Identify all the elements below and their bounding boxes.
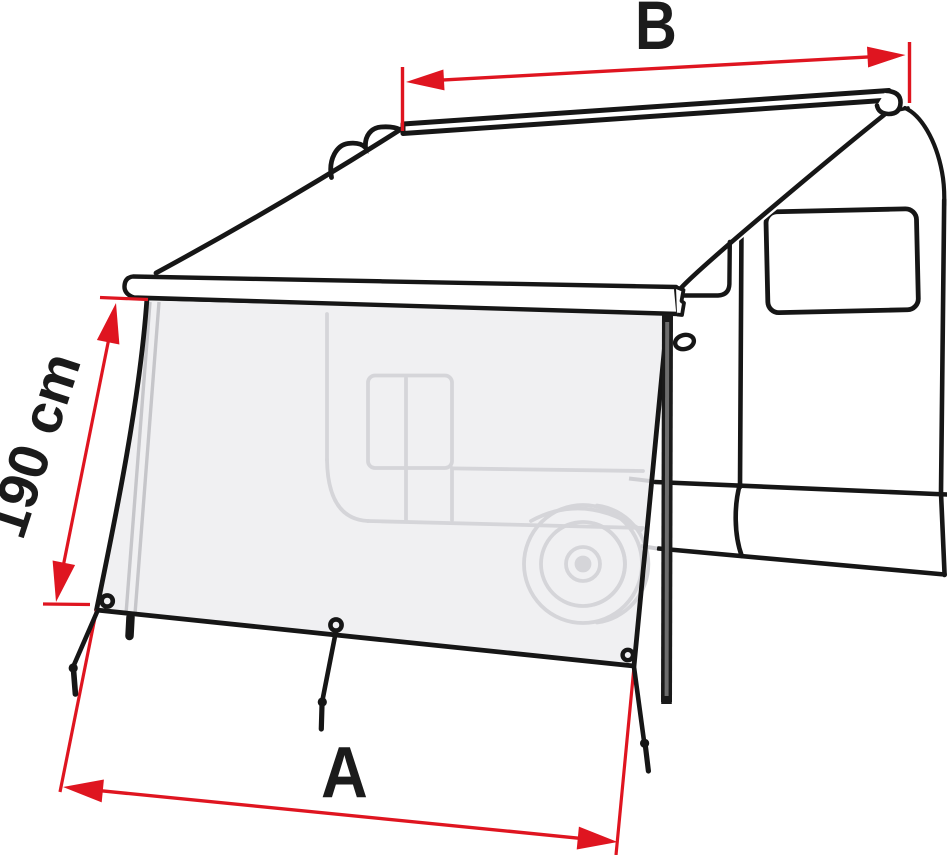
svg-text:B: B [635,0,677,64]
svg-text:A: A [321,732,368,813]
